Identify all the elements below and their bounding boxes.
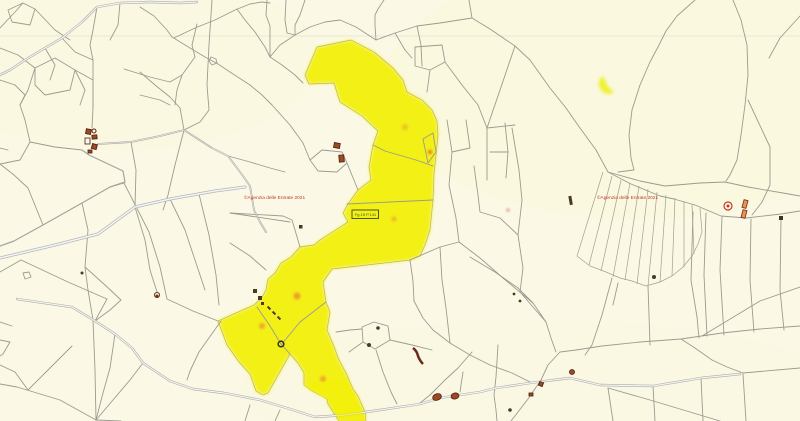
svg-text:©Agenzia delle Entrate 2021: ©Agenzia delle Entrate 2021 — [244, 194, 305, 201]
svg-text:©Agenzia delle Entrate 2021: ©Agenzia delle Entrate 2021 — [597, 194, 658, 201]
svg-text:Fg.15 P.141: Fg.15 P.141 — [355, 212, 377, 217]
